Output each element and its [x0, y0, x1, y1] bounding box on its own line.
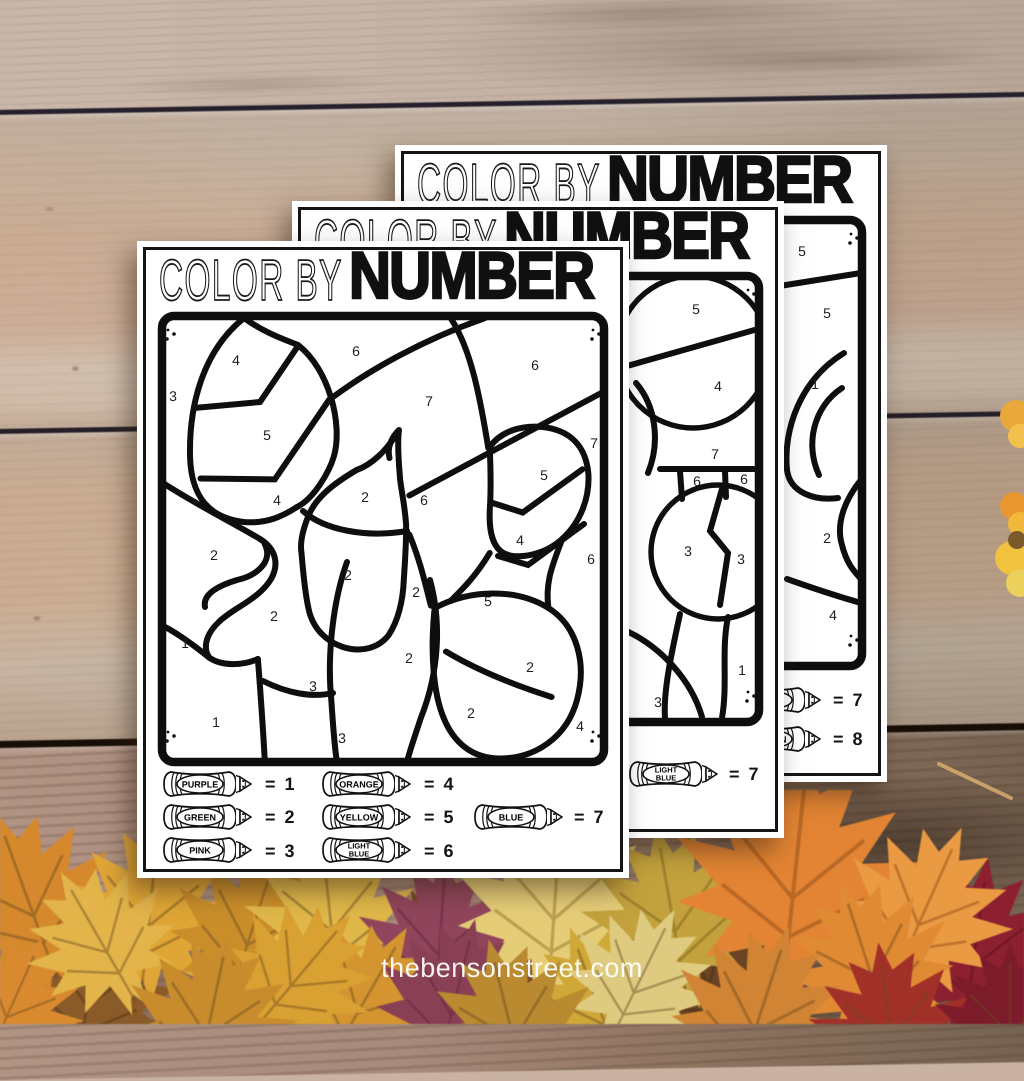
svg-text:6: 6: [352, 343, 360, 359]
svg-text:2: 2: [412, 584, 420, 600]
svg-text:4: 4: [829, 607, 837, 623]
svg-text:BLUE: BLUE: [349, 850, 369, 859]
svg-text:4: 4: [714, 378, 722, 394]
svg-text:2: 2: [344, 567, 352, 583]
svg-text:4: 4: [273, 492, 281, 508]
svg-text:1: 1: [181, 635, 189, 651]
svg-text:4: 4: [576, 718, 584, 734]
svg-text:3: 3: [169, 388, 177, 404]
svg-text:7: 7: [425, 393, 433, 409]
svg-text:ORANGE: ORANGE: [339, 779, 379, 789]
svg-text:5: 5: [540, 467, 548, 483]
svg-text:BLUE: BLUE: [656, 774, 676, 783]
svg-text:2: 2: [210, 547, 218, 563]
svg-text:5: 5: [692, 301, 700, 317]
svg-text:1: 1: [738, 662, 746, 678]
svg-text:5: 5: [798, 243, 806, 259]
svg-text:6: 6: [693, 473, 701, 489]
svg-text:6: 6: [587, 551, 595, 567]
svg-text:7: 7: [711, 446, 719, 462]
svg-text:2: 2: [467, 705, 475, 721]
svg-text:PINK: PINK: [189, 846, 211, 856]
svg-text:2: 2: [270, 608, 278, 624]
svg-text:6: 6: [531, 357, 539, 373]
svg-text:5: 5: [823, 305, 831, 321]
svg-text:3: 3: [309, 678, 317, 694]
svg-text:5: 5: [263, 427, 271, 443]
svg-text:2: 2: [526, 659, 534, 675]
svg-text:BLUE: BLUE: [499, 813, 524, 823]
svg-text:2: 2: [823, 530, 831, 546]
svg-text:1: 1: [811, 376, 819, 392]
svg-text:1: 1: [212, 714, 220, 730]
svg-text:GREEN: GREEN: [184, 813, 216, 823]
svg-text:3: 3: [684, 543, 692, 559]
svg-text:PURPLE: PURPLE: [182, 779, 219, 789]
svg-text:YELLOW: YELLOW: [340, 813, 379, 823]
svg-text:3: 3: [338, 730, 346, 746]
svg-text:7: 7: [590, 435, 598, 451]
svg-text:5: 5: [484, 593, 492, 609]
svg-text:4: 4: [516, 532, 524, 548]
svg-text:2: 2: [405, 650, 413, 666]
svg-text:2: 2: [361, 489, 369, 505]
svg-text:3: 3: [737, 551, 745, 567]
svg-text:6: 6: [740, 471, 748, 487]
svg-text:3: 3: [654, 694, 662, 710]
svg-text:6: 6: [420, 492, 428, 508]
svg-text:4: 4: [232, 352, 240, 368]
